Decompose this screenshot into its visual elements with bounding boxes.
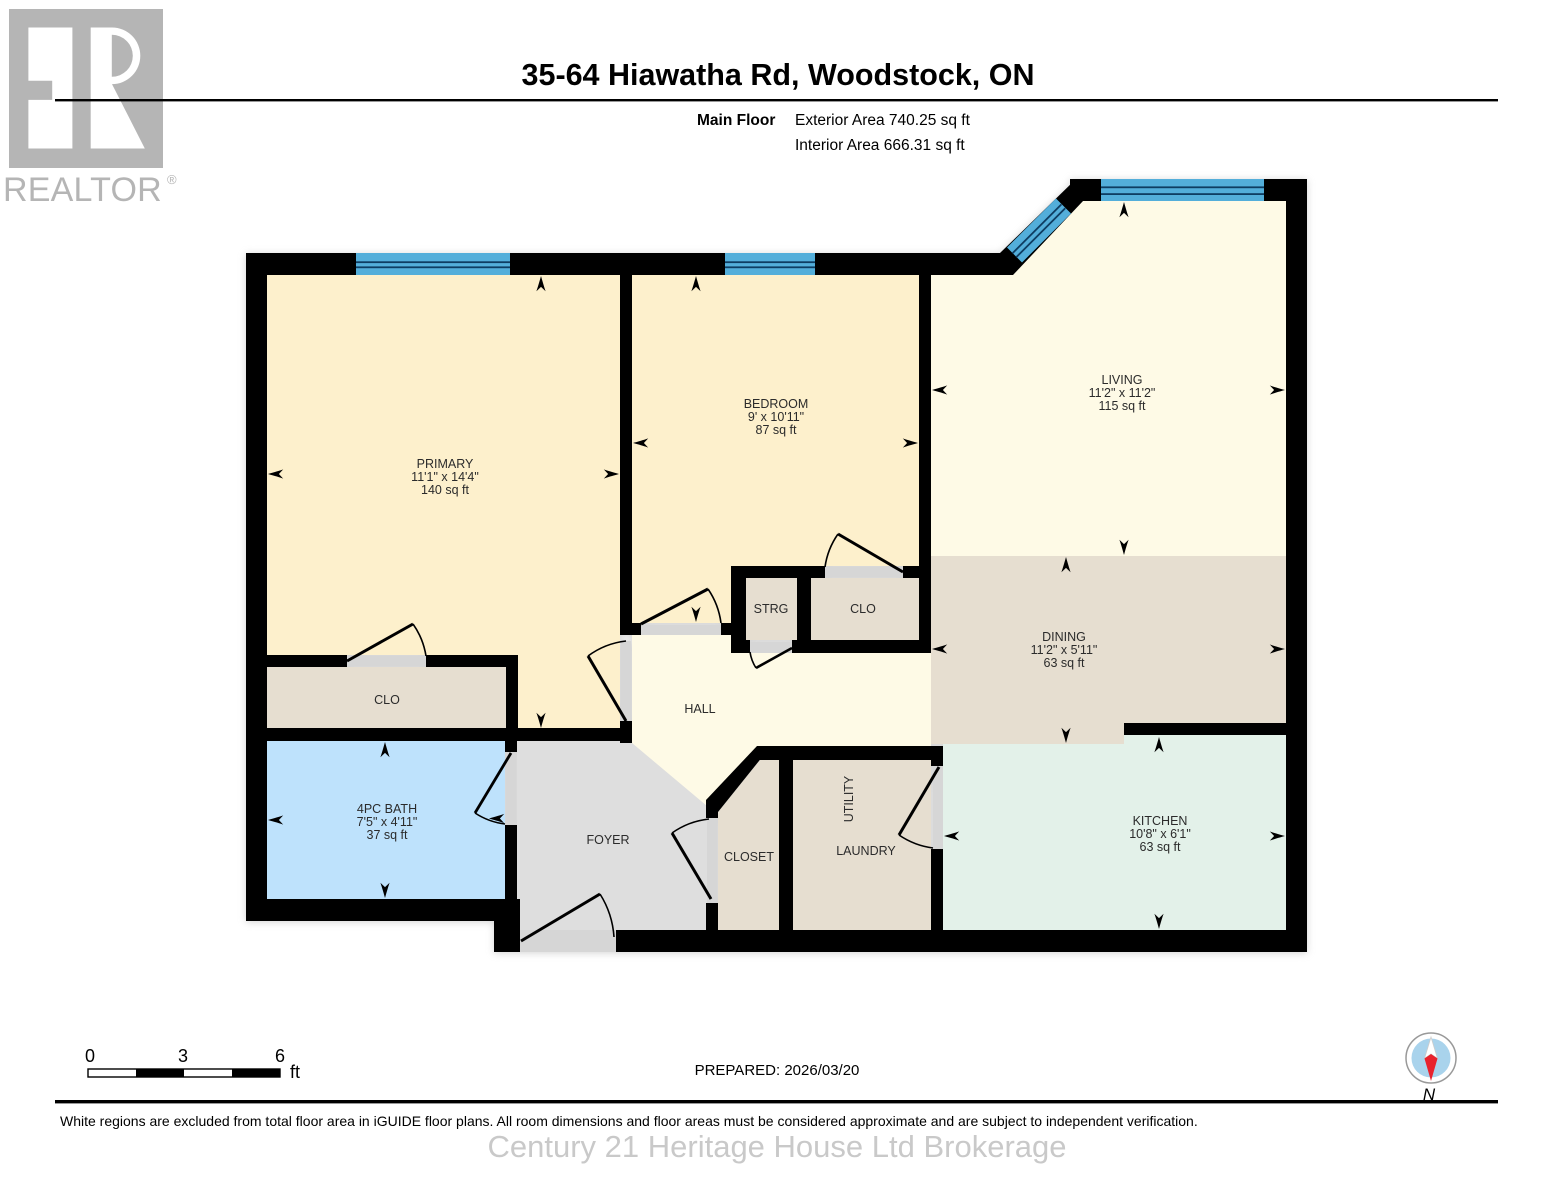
svg-text:63 sq ft: 63 sq ft: [1044, 656, 1086, 670]
svg-text:6: 6: [275, 1046, 285, 1066]
svg-text:0: 0: [85, 1046, 95, 1066]
svg-text:11'2" x 11'2": 11'2" x 11'2": [1089, 386, 1156, 400]
svg-text:LIVING: LIVING: [1102, 373, 1143, 387]
svg-text:CLO: CLO: [374, 693, 400, 707]
svg-text:CLO: CLO: [850, 602, 876, 616]
svg-text:4PC BATH: 4PC BATH: [357, 802, 417, 816]
svg-text:®: ®: [167, 172, 177, 187]
svg-text:UTILITY: UTILITY: [842, 775, 856, 822]
svg-text:7'5" x 4'11": 7'5" x 4'11": [357, 815, 418, 829]
svg-text:9' x 10'11": 9' x 10'11": [748, 410, 804, 424]
svg-text:11'2" x 5'11": 11'2" x 5'11": [1031, 643, 1098, 657]
svg-text:STRG: STRG: [754, 602, 789, 616]
svg-text:DINING: DINING: [1042, 630, 1086, 644]
svg-text:White regions are excluded fro: White regions are excluded from total fl…: [60, 1113, 1198, 1129]
svg-text:ft: ft: [290, 1062, 300, 1082]
svg-text:LAUNDRY: LAUNDRY: [836, 844, 896, 858]
svg-text:REALTOR: REALTOR: [3, 171, 162, 209]
svg-text:Interior Area 666.31 sq ft: Interior Area 666.31 sq ft: [795, 137, 965, 154]
svg-text:Main Floor: Main Floor: [697, 112, 775, 129]
svg-text:PRIMARY: PRIMARY: [417, 457, 474, 471]
svg-text:FOYER: FOYER: [586, 833, 629, 847]
svg-text:11'1" x 14'4": 11'1" x 14'4": [411, 470, 479, 484]
svg-text:Century 21 Heritage House Ltd: Century 21 Heritage House Ltd Brokerage: [488, 1129, 1067, 1164]
svg-text:63 sq ft: 63 sq ft: [1140, 840, 1182, 854]
svg-text:Exterior Area 740.25 sq ft: Exterior Area 740.25 sq ft: [795, 112, 971, 129]
svg-text:CLOSET: CLOSET: [724, 850, 774, 864]
svg-text:35-64 Hiawatha Rd, Woodstock,: 35-64 Hiawatha Rd, Woodstock, ON: [522, 58, 1035, 92]
svg-text:10'8" x 6'1": 10'8" x 6'1": [1129, 827, 1191, 841]
svg-text:3: 3: [178, 1046, 188, 1066]
svg-text:140 sq ft: 140 sq ft: [421, 483, 469, 497]
svg-text:115 sq ft: 115 sq ft: [1098, 399, 1146, 413]
svg-text:HALL: HALL: [684, 702, 715, 716]
svg-text:87 sq ft: 87 sq ft: [756, 423, 798, 437]
svg-text:KITCHEN: KITCHEN: [1133, 814, 1188, 828]
svg-text:BEDROOM: BEDROOM: [744, 397, 809, 411]
svg-text:37 sq ft: 37 sq ft: [367, 828, 409, 842]
svg-text:PREPARED: 2026/03/20: PREPARED: 2026/03/20: [695, 1062, 860, 1079]
